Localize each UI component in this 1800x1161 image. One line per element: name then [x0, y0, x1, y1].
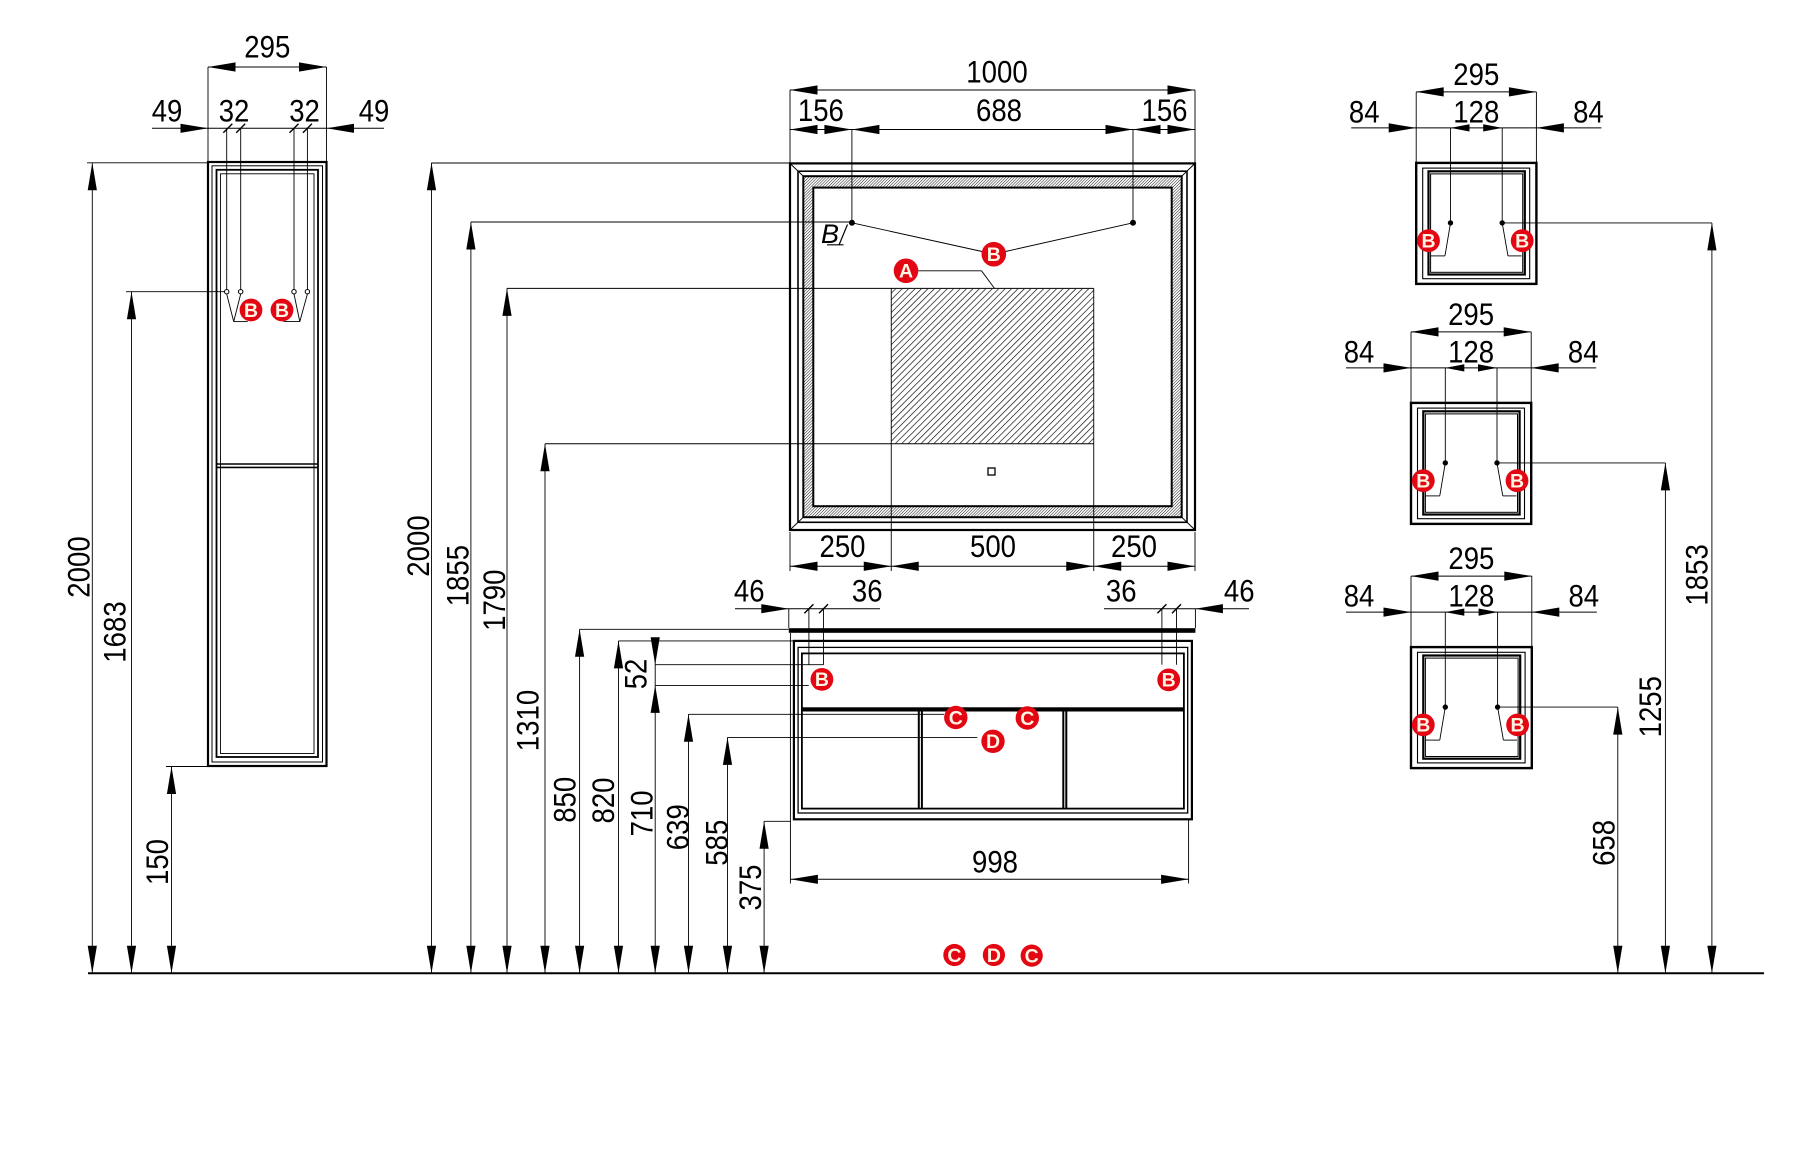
- svg-text:2000: 2000: [400, 515, 436, 576]
- svg-text:295: 295: [1448, 540, 1494, 576]
- svg-text:52: 52: [618, 659, 654, 690]
- svg-text:156: 156: [798, 92, 844, 128]
- svg-text:295: 295: [1453, 56, 1499, 92]
- svg-text:1790: 1790: [476, 570, 512, 631]
- svg-text:B: B: [1162, 670, 1176, 692]
- svg-text:84: 84: [1569, 578, 1600, 614]
- svg-text:32: 32: [289, 93, 320, 129]
- svg-text:1855: 1855: [439, 545, 475, 606]
- svg-text:84: 84: [1568, 333, 1599, 369]
- svg-text:295: 295: [1448, 296, 1494, 332]
- svg-text:B: B: [1515, 231, 1529, 253]
- svg-text:D: D: [986, 731, 1000, 753]
- svg-text:2000: 2000: [60, 536, 96, 597]
- svg-text:150: 150: [139, 839, 175, 885]
- svg-text:B: B: [1421, 231, 1435, 253]
- svg-text:84: 84: [1344, 578, 1375, 614]
- svg-text:1000: 1000: [966, 54, 1027, 90]
- svg-text:658: 658: [1586, 820, 1622, 866]
- svg-text:250: 250: [820, 528, 866, 564]
- svg-text:46: 46: [734, 573, 765, 609]
- svg-text:C: C: [949, 707, 963, 729]
- svg-text:49: 49: [359, 93, 390, 129]
- svg-text:1255: 1255: [1632, 676, 1668, 737]
- svg-text:A: A: [899, 261, 913, 283]
- svg-text:C: C: [1020, 708, 1034, 730]
- svg-text:32: 32: [219, 93, 250, 129]
- svg-text:84: 84: [1349, 93, 1380, 129]
- svg-text:295: 295: [244, 29, 290, 65]
- svg-text:C: C: [1025, 945, 1039, 967]
- svg-text:710: 710: [624, 790, 660, 836]
- svg-text:639: 639: [660, 804, 696, 850]
- svg-text:B: B: [987, 244, 1001, 266]
- svg-text:36: 36: [1106, 573, 1137, 609]
- svg-text:585: 585: [699, 820, 735, 866]
- svg-text:1310: 1310: [510, 690, 546, 751]
- svg-text:128: 128: [1448, 333, 1494, 369]
- svg-text:375: 375: [732, 865, 768, 911]
- svg-text:B: B: [815, 669, 829, 691]
- svg-text:36: 36: [852, 573, 883, 609]
- svg-text:156: 156: [1142, 92, 1188, 128]
- svg-text:688: 688: [976, 92, 1022, 128]
- svg-text:49: 49: [152, 93, 183, 129]
- svg-text:B: B: [1511, 715, 1525, 737]
- svg-text:84: 84: [1344, 333, 1375, 369]
- svg-text:C: C: [947, 945, 961, 967]
- svg-text:1853: 1853: [1679, 544, 1715, 605]
- svg-text:128: 128: [1453, 93, 1499, 129]
- svg-text:46: 46: [1224, 573, 1255, 609]
- svg-text:820: 820: [585, 778, 621, 824]
- svg-text:250: 250: [1111, 528, 1157, 564]
- svg-text:84: 84: [1573, 93, 1604, 129]
- svg-text:500: 500: [970, 528, 1016, 564]
- svg-text:B: B: [1510, 471, 1524, 493]
- svg-text:850: 850: [547, 777, 583, 823]
- svg-text:998: 998: [972, 844, 1018, 880]
- svg-text:B: B: [1416, 471, 1430, 493]
- svg-text:B: B: [244, 300, 258, 322]
- svg-text:B: B: [275, 300, 289, 322]
- svg-text:D: D: [987, 945, 1001, 967]
- svg-text:1683: 1683: [96, 601, 132, 662]
- svg-text:128: 128: [1448, 578, 1494, 614]
- svg-text:B: B: [1416, 715, 1430, 737]
